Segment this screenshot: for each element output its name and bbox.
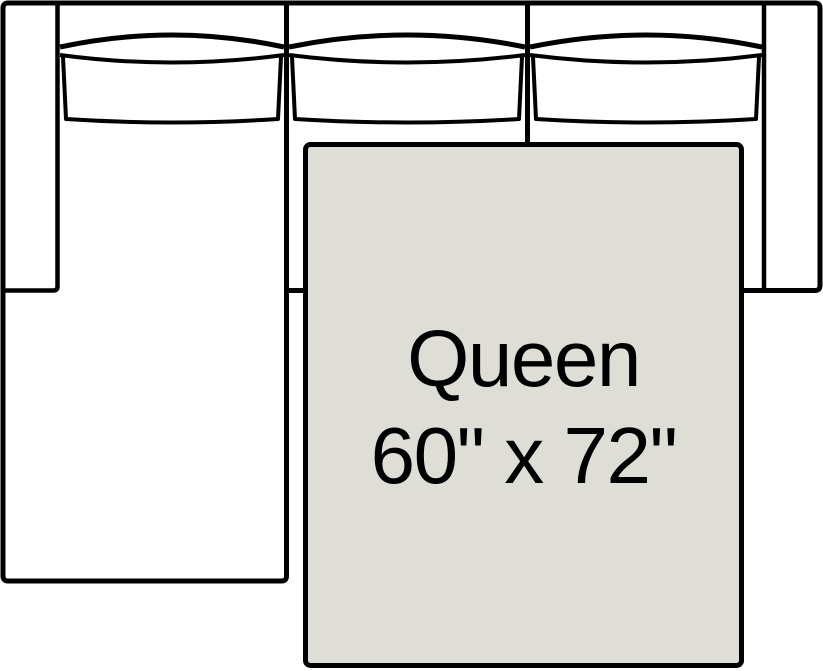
- sofa-sleeper-diagram: Queen 60" x 72": [0, 0, 823, 671]
- mattress-overlay: [306, 145, 742, 666]
- mattress-size-label: Queen: [407, 314, 640, 403]
- diagram-canvas: Queen 60" x 72": [0, 0, 823, 671]
- mattress-dimensions-label: 60" x 72": [371, 411, 677, 500]
- mattress-rect: [306, 145, 742, 666]
